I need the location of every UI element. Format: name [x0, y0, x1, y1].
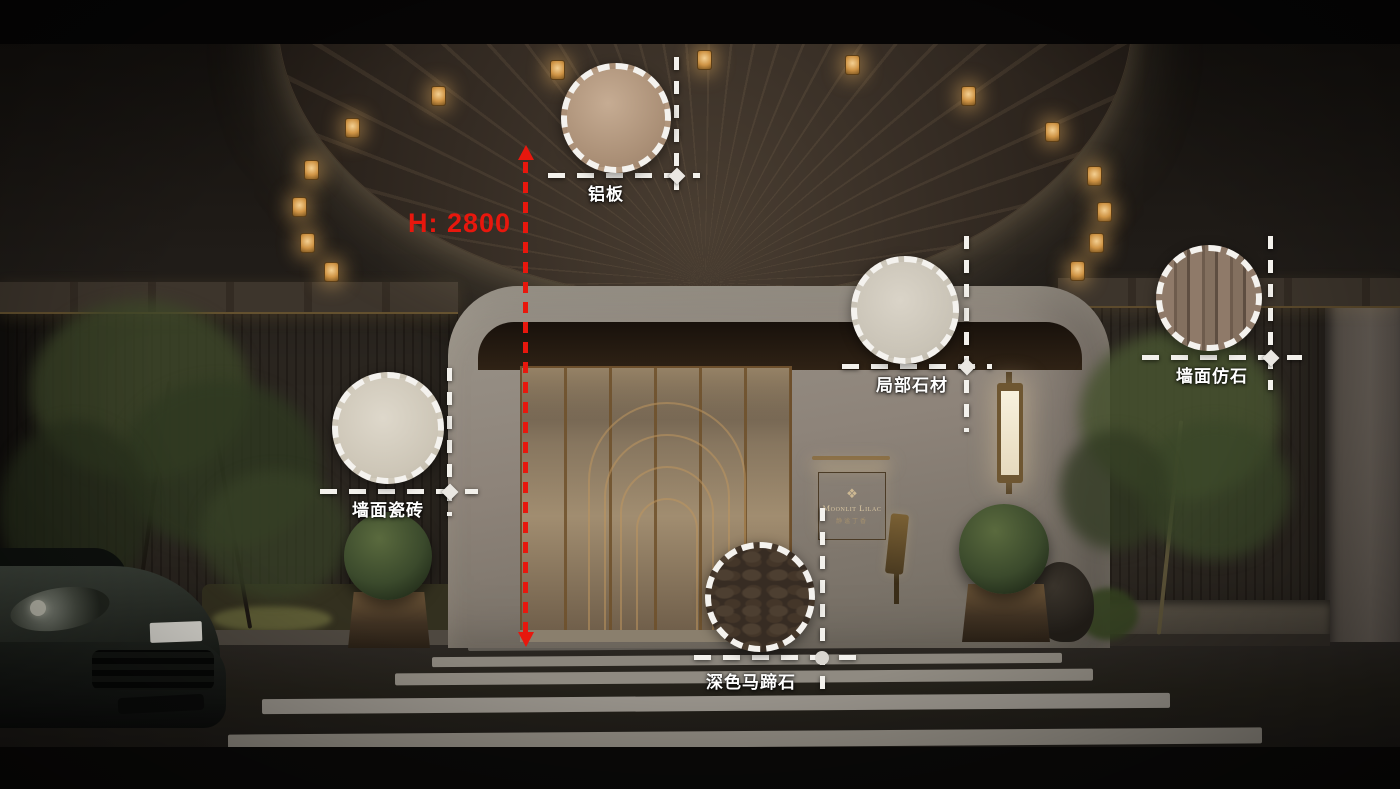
swatch-faux-stone-wall [1156, 245, 1262, 351]
dimension-line [523, 162, 528, 632]
car-license-plate [150, 621, 203, 643]
material-label-faux-stone-wall: 墙面仿石 [1176, 362, 1248, 387]
swatch-partial-stone [851, 256, 959, 364]
brand-name-chinese: 静谧丁香 [836, 516, 868, 525]
callout-leader-line [964, 236, 969, 432]
entrance-lintel [478, 322, 1082, 370]
bottom-black-band [0, 747, 1400, 789]
lantern-light-icon [300, 233, 315, 253]
far-right-panel-wall [1325, 282, 1400, 674]
brand-logo-icon: ❖ [846, 488, 858, 500]
lantern-light-icon [550, 60, 565, 80]
dimension-arrow-up-icon [518, 145, 534, 160]
decorative-arch-screen [636, 498, 698, 640]
material-label-dark-cobblestone: 深色马蹄石 [706, 668, 796, 693]
lantern-light-icon [1097, 202, 1112, 222]
hotel-entrance-material-board: ❖ Moonlit Lilac 静谧丁香 H: 2800 铝板 [0, 0, 1400, 789]
lantern-light-icon [345, 118, 360, 138]
left-planter [348, 592, 430, 648]
material-label-partial-stone: 局部石材 [876, 371, 948, 396]
dot-marker-icon [815, 651, 829, 665]
brand-sign-plaque: ❖ Moonlit Lilac 静谧丁香 [818, 472, 886, 540]
sign-picture-light [812, 456, 890, 460]
car-headlight-lamp [30, 600, 46, 616]
dimension-arrow-down-icon [518, 632, 534, 647]
dimension-label: H: 2800 [408, 208, 511, 239]
lantern-light-icon [292, 197, 307, 217]
lantern-light-icon [1070, 261, 1085, 281]
lantern-light-icon [961, 86, 976, 106]
lantern-light-icon [845, 55, 860, 75]
material-label-ceramic-tile-wall: 墙面瓷砖 [352, 496, 424, 521]
left-bush [344, 512, 432, 600]
lantern-light-icon [1089, 233, 1104, 253]
lantern-light-icon [1045, 122, 1060, 142]
menu-stand-pole [894, 570, 899, 604]
tree-foliage [1060, 430, 1170, 550]
lantern-light-icon [324, 262, 339, 282]
top-black-band [0, 0, 1400, 44]
lantern-light-icon [431, 86, 446, 106]
right-bush [959, 504, 1049, 594]
left-garden-grass [212, 606, 332, 632]
lantern-light-icon [304, 160, 319, 180]
car-grille [92, 650, 214, 690]
swatch-ceramic-tile-wall [332, 372, 444, 484]
wall-lantern [997, 383, 1023, 483]
wall-lantern-glow-pane [1001, 391, 1019, 475]
lantern-light-icon [697, 50, 712, 70]
brand-name: Moonlit Lilac [822, 503, 881, 513]
swatch-dark-cobblestone [705, 542, 815, 652]
canopy-radial-ribs [278, 0, 1132, 299]
callout-leader-line [694, 655, 862, 660]
wall-lamp-bracket [1006, 482, 1012, 494]
lantern-light-icon [1087, 166, 1102, 186]
swatch-aluminum-panel [561, 63, 671, 173]
entrance-canopy [277, 0, 1133, 300]
material-label-aluminum-panel: 铝板 [588, 180, 624, 205]
